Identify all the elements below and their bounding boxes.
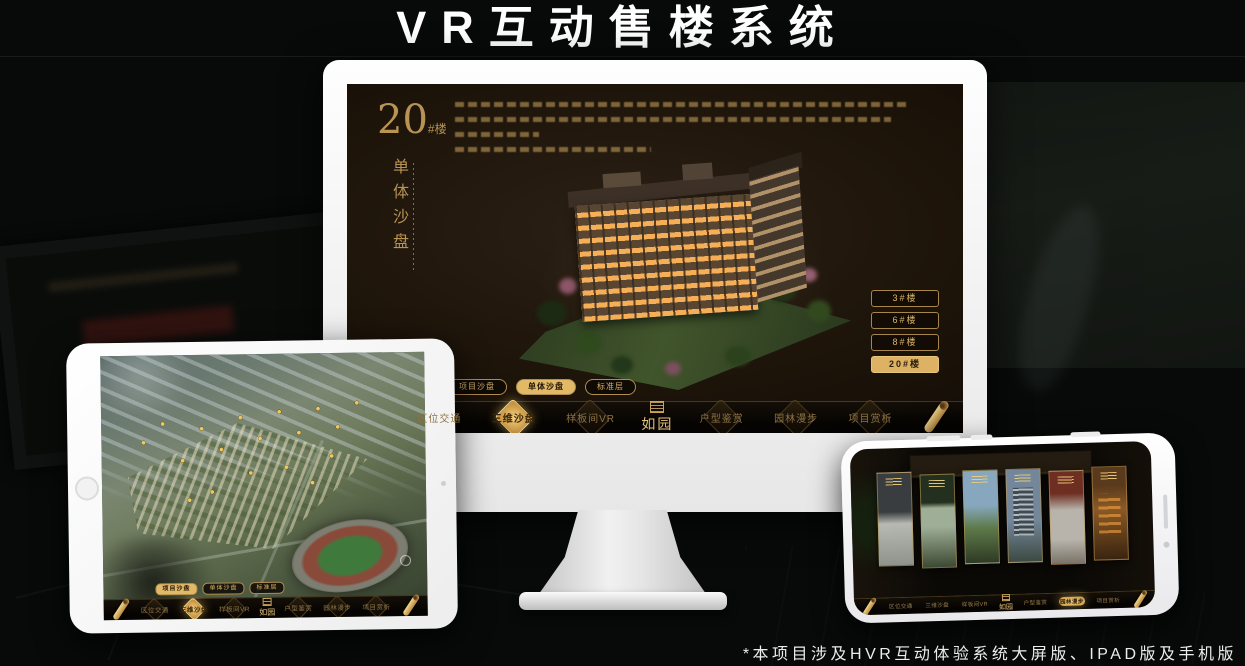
brand-logo-text: 如园 — [641, 414, 673, 433]
scroll-roll-icon — [112, 599, 129, 620]
gallery-panel-skyline[interactable] — [962, 469, 1000, 564]
tablet-frame: 项目沙盘 单体沙盘 标准层 区位交通 三维沙盘 样板间VR 如园 户型鉴赏 园林… — [66, 338, 458, 633]
menu-item-label: 区位交通 — [889, 604, 913, 611]
menu-item-unit-plans[interactable]: 户型鉴赏 — [1022, 597, 1050, 608]
menu-item-label: 园林漫步 — [774, 414, 818, 425]
menu-item-label: 户型鉴赏 — [284, 605, 312, 612]
floor-button-20[interactable]: 20#楼 — [871, 356, 939, 373]
tablet-screen: 项目沙盘 单体沙盘 标准层 区位交通 三维沙盘 样板间VR 如园 户型鉴赏 园林… — [100, 352, 428, 620]
menu-item-garden-walk[interactable]: 园林漫步 — [770, 408, 822, 427]
blossom-tree — [559, 278, 577, 294]
menu-item-showroom-vr[interactable]: 样板间VR — [960, 599, 990, 610]
menu-item-label: 区位交通 — [417, 414, 461, 425]
menu-item-garden-walk[interactable]: 园林漫步 — [1058, 596, 1086, 607]
menu-item-label: 三维沙盘 — [492, 414, 536, 425]
floor-button-8[interactable]: 8#楼 — [871, 334, 939, 351]
subtab-standard-floor[interactable]: 标准层 — [585, 379, 636, 395]
menu-item-showroom-vr[interactable]: 样板间VR — [217, 602, 252, 614]
menu-item-3d-sandbox[interactable]: 三维沙盘 — [488, 408, 540, 427]
menu-item-label: 样板间VR — [962, 602, 988, 609]
tablet-subtab-group: 项目沙盘 单体沙盘 标准层 — [155, 582, 284, 596]
brand-logo: 如园 — [641, 401, 673, 433]
brand-logo: 如园 — [259, 598, 275, 618]
phone-speaker-pill — [1163, 494, 1168, 528]
menu-item-label: 园林漫步 — [1060, 599, 1084, 606]
building-side-facade — [749, 166, 807, 303]
menu-item-location[interactable]: 区位交通 — [139, 603, 171, 615]
subtab-single-sandbox[interactable]: 单体沙盘 — [516, 379, 576, 395]
phone-volume-button — [970, 434, 992, 440]
menu-item-label: 园林漫步 — [323, 605, 351, 612]
tablet-camera-dot — [441, 481, 446, 486]
subtab-project-sandbox[interactable]: 项目沙盘 — [447, 379, 507, 395]
menu-item-label: 样板间VR — [566, 414, 615, 425]
subtab-standard-floor[interactable]: 标准层 — [249, 582, 284, 594]
menu-item-label: 户型鉴赏 — [700, 414, 744, 425]
gallery-panel-garden[interactable] — [919, 474, 957, 569]
phone-camera-dot — [1163, 542, 1169, 548]
menu-item-label: 户型鉴赏 — [1024, 600, 1048, 607]
page-title: VR互动售楼系统 — [0, 0, 1245, 56]
menu-item-label: 样板间VR — [219, 606, 250, 613]
building-block — [572, 150, 814, 322]
phone-volume-button — [926, 435, 960, 441]
building-subtitle-vertical: 单体沙盘 — [387, 158, 411, 258]
monitor-stand-base — [519, 592, 727, 610]
scroll-roll-icon — [1133, 590, 1147, 608]
building-number-suffix: #楼 — [428, 122, 447, 136]
background-seam — [0, 56, 1245, 57]
floor-button-group: 3#楼 6#楼 8#楼 20#楼 — [871, 290, 939, 373]
description-line — [455, 117, 891, 122]
footnote-text: *本项目涉及HVR互动体验系统大屏版、IPAD版及手机版 — [743, 640, 1237, 664]
rooftop-structure — [602, 172, 641, 189]
menu-item-project-gallery[interactable]: 项目赏析 — [1094, 595, 1122, 606]
floor-button-6[interactable]: 6#楼 — [871, 312, 939, 329]
floor-button-3[interactable]: 3#楼 — [871, 290, 939, 307]
brand-logo-text: 如园 — [999, 602, 1013, 612]
phone-frame: 区位交通 三维沙盘 样板间VR 如园 户型鉴赏 园林漫步 项目赏析 — [841, 432, 1180, 623]
menu-item-label: 项目赏析 — [362, 604, 390, 611]
building-front-facade — [575, 194, 759, 322]
building-3d-view[interactable] — [515, 150, 855, 394]
menu-item-label: 区位交通 — [141, 607, 169, 614]
rooftop-structure — [682, 163, 713, 181]
building-title: 20#楼 — [377, 100, 447, 140]
seal-icon — [650, 401, 664, 413]
seal-icon — [263, 598, 272, 606]
seal-icon — [1002, 594, 1010, 601]
tree — [611, 356, 633, 374]
menu-item-label: 项目赏析 — [849, 414, 893, 425]
description-line — [455, 102, 907, 107]
blossom-tree — [665, 362, 681, 375]
gallery-panels — [876, 466, 1129, 570]
menu-item-unit-plans[interactable]: 户型鉴赏 — [696, 408, 748, 427]
menu-item-showroom-vr[interactable]: 样板间VR — [562, 408, 619, 427]
subtab-project-sandbox[interactable]: 项目沙盘 — [155, 583, 197, 596]
sandbox-subtab-group: 项目沙盘 单体沙盘 标准层 — [447, 379, 636, 395]
tablet-menubar: 区位交通 三维沙盘 样板间VR 如园 户型鉴赏 园林漫步 项目赏析 — [104, 595, 428, 621]
tree — [575, 332, 601, 354]
tablet-home-button — [75, 476, 99, 500]
gallery-panel-interior[interactable] — [1091, 466, 1129, 561]
gallery-panel-tower[interactable] — [1005, 468, 1043, 563]
gallery-panel-autumn[interactable] — [1048, 470, 1086, 565]
scroll-roll-icon — [862, 598, 876, 615]
background-aerial-photo — [969, 82, 1245, 368]
menu-item-unit-plans[interactable]: 户型鉴赏 — [282, 601, 314, 613]
menu-item-project-gallery[interactable]: 项目赏析 — [360, 600, 392, 612]
subtab-single-sandbox[interactable]: 单体沙盘 — [202, 582, 244, 595]
project-aerial-view[interactable] — [100, 352, 428, 620]
menu-item-garden-walk[interactable]: 园林漫步 — [321, 601, 353, 613]
building-number: 20 — [377, 97, 428, 143]
brand-logo: 如园 — [999, 594, 1013, 612]
menu-item-3d-sandbox[interactable]: 三维沙盘 — [178, 603, 210, 615]
scroll-roll-icon — [923, 401, 949, 433]
subtitle-divider — [413, 162, 414, 270]
plaque-small-text-blur — [48, 263, 238, 293]
brand-logo-text: 如园 — [259, 607, 275, 618]
scroll-roll-icon — [402, 595, 419, 617]
menu-item-label: 项目赏析 — [1096, 598, 1120, 605]
menu-item-location[interactable]: 区位交通 — [887, 601, 915, 612]
menu-item-3d-sandbox[interactable]: 三维沙盘 — [923, 600, 951, 611]
phone-menubar: 区位交通 三维沙盘 样板间VR 如园 户型鉴赏 园林漫步 项目赏析 — [854, 590, 1155, 615]
menu-item-label: 三维沙盘 — [180, 607, 208, 614]
menu-item-project-gallery[interactable]: 项目赏析 — [845, 408, 897, 427]
menu-item-label: 三维沙盘 — [925, 603, 949, 610]
phone-screen: 区位交通 三维沙盘 样板间VR 如园 户型鉴赏 园林漫步 项目赏析 — [850, 441, 1156, 615]
monitor-stand-neck — [538, 510, 708, 596]
tree — [725, 346, 751, 366]
tree — [537, 300, 567, 326]
background-river — [1001, 197, 1117, 396]
poster-stage: VR互动售楼系统 20#楼 单体沙盘 — [0, 0, 1245, 666]
phone-power-button — [1070, 431, 1100, 437]
gallery-panel-courtyard[interactable] — [876, 472, 914, 567]
